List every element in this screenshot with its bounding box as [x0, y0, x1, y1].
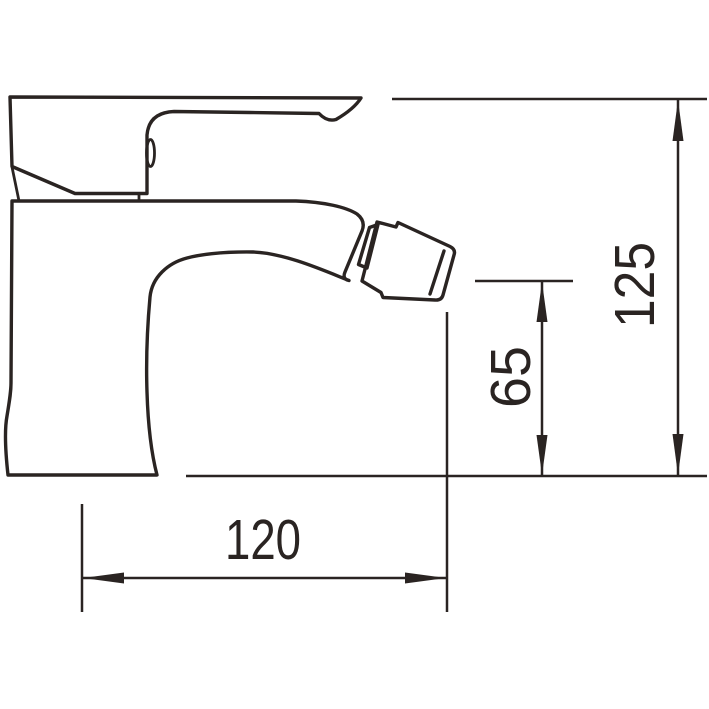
dim-label-65: 65 — [479, 346, 543, 408]
arrowhead-down-65 — [537, 435, 548, 475]
faucet-handle-outline — [10, 97, 361, 194]
arrowhead-left-120 — [83, 573, 124, 584]
handle-chin-edge — [12, 167, 19, 201]
dimensioning: 125 65 120 — [82, 99, 707, 612]
faucet-dimension-drawing: 125 65 120 — [0, 0, 709, 709]
aerator-face-inset-line — [430, 251, 444, 294]
arrowhead-up-125 — [673, 100, 684, 141]
dim-label-125: 125 — [603, 242, 667, 328]
faucet-body-outline — [5, 201, 363, 475]
dimension-120: 120 — [83, 508, 446, 584]
dimension-65: 65 — [479, 282, 548, 475]
faucet-outline — [5, 97, 454, 475]
technical-drawing-canvas: 125 65 120 — [0, 0, 709, 709]
arrowhead-down-125 — [673, 434, 684, 475]
arrowhead-up-65 — [537, 282, 548, 322]
arrowhead-right-120 — [405, 573, 446, 584]
neck-indicator-dot — [147, 140, 155, 167]
dimension-125: 125 — [603, 100, 684, 475]
dim-label-120: 120 — [225, 508, 301, 572]
